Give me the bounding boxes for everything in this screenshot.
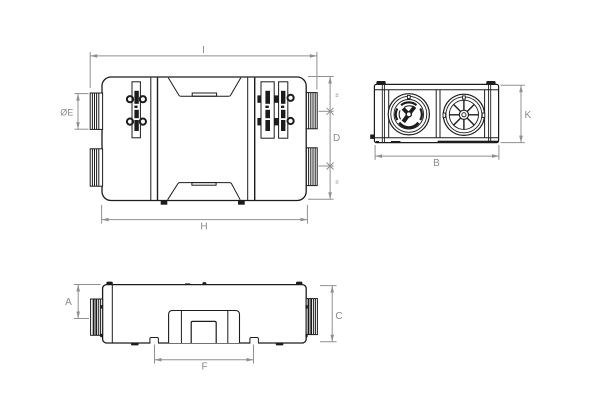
svg-text:B: B xyxy=(433,158,440,169)
svg-text:I: I xyxy=(202,45,205,56)
svg-text:F: F xyxy=(201,362,207,373)
svg-text:K: K xyxy=(525,110,532,121)
svg-text:C: C xyxy=(335,311,342,322)
svg-text:D: D xyxy=(333,133,340,144)
svg-text:A: A xyxy=(65,297,72,308)
svg-text:ØE: ØE xyxy=(60,108,73,118)
svg-text:H: H xyxy=(200,222,207,233)
